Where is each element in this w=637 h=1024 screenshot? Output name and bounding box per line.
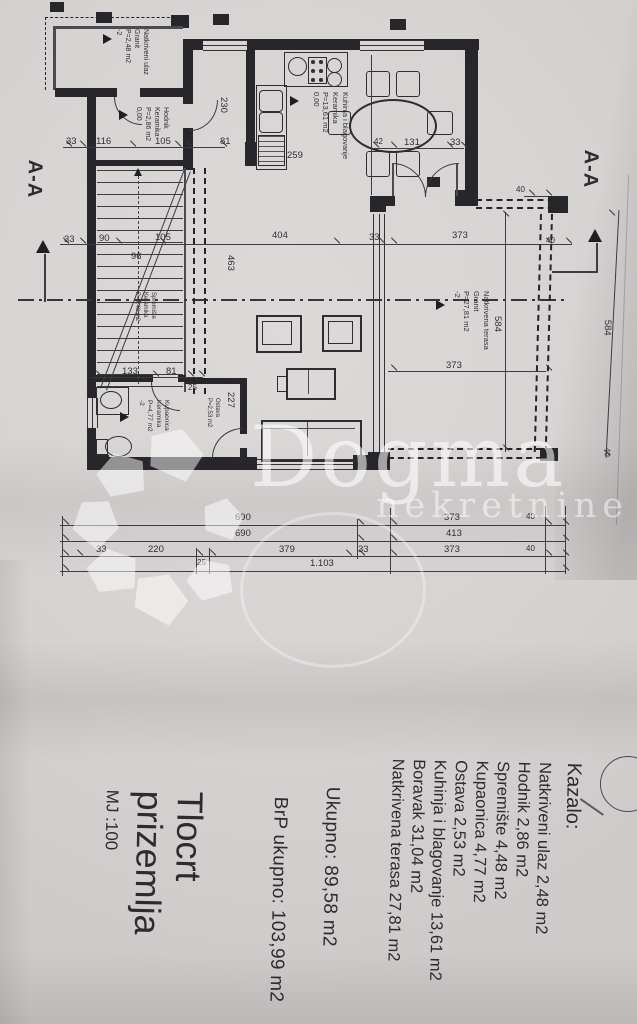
burner-large-2 xyxy=(327,72,342,87)
dimension-line xyxy=(357,519,358,559)
room-label-line: Keramika xyxy=(140,292,148,321)
column-living-terrace-bottom xyxy=(368,452,390,468)
room-label: HodnikKeramikaP=2,86 m20,00 xyxy=(134,107,170,141)
room-label-line: P=2,48 m2 xyxy=(123,29,132,75)
dimension-line xyxy=(44,254,46,302)
stair-direction-arrow xyxy=(134,168,142,176)
dimension-label: 96 xyxy=(131,251,142,262)
dimension-line xyxy=(62,516,63,576)
wall-hall-stairs xyxy=(87,160,185,166)
dimension-label: 373 xyxy=(444,512,460,523)
hob-plate-icon xyxy=(288,57,307,76)
room-label-line: P=4,77 m2 xyxy=(145,400,153,432)
level-marker-icon xyxy=(120,412,129,422)
dashed-line xyxy=(388,457,542,459)
stamp-circle xyxy=(600,756,637,812)
dimension-tick xyxy=(609,209,616,216)
room-label: OstavaP=2,53 m2 xyxy=(204,398,220,427)
toilet-bowl xyxy=(105,436,132,457)
door-leaf-right xyxy=(456,163,458,196)
legend-heading: Kazalo: xyxy=(557,762,585,984)
dimension-line xyxy=(505,212,506,452)
dimension-label: 220 xyxy=(148,544,164,555)
wall-storage-right xyxy=(240,378,247,434)
dimension-label: 116 xyxy=(96,136,111,147)
wall-bottom-a xyxy=(87,457,209,470)
dimension-line xyxy=(209,548,210,574)
room-label: KupaonicaKeramikaP=4,77 m2-2 xyxy=(136,400,170,432)
dimension-label: 230 xyxy=(218,97,229,113)
dashed-line xyxy=(45,17,46,90)
wall-bottom-b xyxy=(209,457,257,470)
floor-plan-photo: 3390105404333734096463230259227584584404… xyxy=(0,0,637,1024)
door-arc-terrace-right xyxy=(425,163,459,197)
armchair-1 xyxy=(256,315,302,353)
dimension-label: 40 xyxy=(516,185,525,194)
dashed-line xyxy=(45,17,185,18)
dimension-label: 463 xyxy=(225,255,236,271)
wall-right-upper xyxy=(465,39,478,199)
dimension-label: 133 xyxy=(122,366,138,377)
window-living-east xyxy=(373,214,385,452)
door-leaf-left xyxy=(392,163,394,196)
armchair-2 xyxy=(322,315,362,352)
door-arc-storage xyxy=(212,428,243,458)
stove-burners-icon xyxy=(311,60,315,64)
legend-kazalo: Kazalo: Natkriveni ulaz 2,48 m2Hodnik 2,… xyxy=(382,759,585,985)
hall-wall-top-a xyxy=(55,88,117,97)
room-label-line: Kuhinja i blagovanje xyxy=(340,92,350,159)
door-arc-corridor xyxy=(190,100,218,131)
room-label-line: Keramika xyxy=(331,92,341,159)
section-label-right: A-A xyxy=(578,149,602,188)
legend-total: Ukupno: 89,58 m2 xyxy=(317,787,343,948)
sofa xyxy=(261,420,362,462)
armchair-2-seat xyxy=(328,321,353,344)
section-axis-line xyxy=(18,299,568,301)
level-marker-icon xyxy=(290,96,299,106)
room-label-line: P=13,61 m2 xyxy=(321,92,331,159)
wall-stairs-right xyxy=(184,168,186,392)
section-arrow-left xyxy=(36,240,50,253)
legend-gross-total: BrP ukupno: 103,99 m2 xyxy=(264,797,291,1003)
dimension-label: 90 xyxy=(99,233,110,244)
dimension-line xyxy=(93,377,203,378)
level-marker-icon xyxy=(119,110,128,120)
wall-kitchen xyxy=(246,50,255,144)
dashed-line xyxy=(476,199,564,201)
section-label-left: A-A xyxy=(22,159,46,198)
dimension-line xyxy=(524,196,548,197)
appliance-icon xyxy=(258,135,285,166)
chair xyxy=(396,71,420,97)
column-terrace-se xyxy=(540,448,558,461)
dimension-label: 40 xyxy=(526,512,535,521)
paper-shading-band-lower xyxy=(0,640,637,760)
title-block: Tlocrt prizemlja MJ :100 xyxy=(99,790,210,936)
room-label: Natkriveni ulazGranitP=2,48 m2-2 xyxy=(114,29,150,75)
dimension-line xyxy=(545,506,546,574)
dimension-tick xyxy=(503,210,510,217)
dim-tag-3 xyxy=(390,19,406,30)
room-label-line: Kupaonica xyxy=(162,400,170,432)
armchair-1-seat xyxy=(262,321,292,345)
floor-plan-drawing: 3390105404333734096463230259227584584404… xyxy=(0,0,637,600)
dashed-line xyxy=(476,207,564,209)
dimension-label: 131 xyxy=(404,137,420,148)
bath-sink-bowl xyxy=(100,391,122,409)
dimension-label: 379 xyxy=(279,544,295,555)
dimension-label: 25 xyxy=(197,558,206,567)
dimension-label: 81 xyxy=(166,366,177,377)
burner-large-1 xyxy=(327,58,342,73)
room-label-line: Keramika xyxy=(153,400,161,432)
dimension-label: 373 xyxy=(452,230,468,241)
dimension-line xyxy=(63,147,225,148)
chair xyxy=(366,151,390,177)
dimension-label: 404 xyxy=(272,230,288,241)
coffee-table xyxy=(286,368,336,400)
dimension-line xyxy=(196,548,197,574)
level-marker-icon xyxy=(436,300,445,310)
dimension-label: 584 xyxy=(492,316,503,332)
room-label: Kuhinja i blagovanjeKeramikaP=13,61 m20,… xyxy=(311,92,350,159)
drawing-title-line2: prizemlja xyxy=(127,790,170,935)
room-label-line: P=2,86 m2 xyxy=(143,107,152,141)
dashed-line xyxy=(204,168,206,394)
room-label-line: -2 xyxy=(114,29,123,75)
dimension-line xyxy=(60,571,565,572)
dimension-label: 690 xyxy=(235,512,251,523)
dimension-label: 373 xyxy=(444,544,460,555)
dimension-line xyxy=(565,506,566,574)
room-label: SpremišteKeramikaP=4,48 m2 xyxy=(133,292,156,321)
level-marker-icon xyxy=(103,34,112,44)
dimension-label: 40 xyxy=(526,544,535,553)
dimension-line xyxy=(60,244,572,245)
dimension-line xyxy=(388,371,546,372)
chair xyxy=(366,71,390,97)
sink-basin-2 xyxy=(259,112,283,133)
room-label-line: 0,00 xyxy=(311,92,321,159)
dimension-line xyxy=(60,541,565,542)
stair-walk-line xyxy=(138,176,139,384)
sofa-back-line xyxy=(263,428,355,429)
dashed-line xyxy=(534,214,542,452)
room-label-line: Keramika xyxy=(152,107,161,141)
wall-left-outer xyxy=(87,88,96,398)
dim-tag-4 xyxy=(50,2,64,12)
entrance-wall-left xyxy=(53,26,56,90)
window-top-2 xyxy=(360,40,424,51)
dim-tag-2 xyxy=(213,14,229,25)
toilet-tank xyxy=(96,439,108,455)
coffee-table-side xyxy=(277,376,288,392)
dimension-label: 259 xyxy=(287,150,303,161)
drawing-scale: MJ :100 xyxy=(99,790,122,934)
room-label-line: Granit xyxy=(132,29,141,75)
dimension-label: 227 xyxy=(225,392,236,408)
dimension-line xyxy=(60,525,565,526)
coffee-table-divider xyxy=(308,370,309,394)
window-top-1 xyxy=(203,40,247,51)
room-label-line: Natkriveni ulaz xyxy=(141,29,150,75)
dimension-line xyxy=(596,243,598,273)
paper-shadow-left-edge xyxy=(0,560,30,1024)
dimension-label: 1.103 xyxy=(310,558,334,569)
dashed-line xyxy=(388,448,542,450)
legend-items: Natkriveni ulaz 2,48 m2Hodnik 2,86 m2Spr… xyxy=(382,759,555,984)
room-label-line: -2 xyxy=(136,400,144,432)
hall-wall-top-b xyxy=(140,88,185,97)
wall-dining-bottom-a xyxy=(383,196,395,206)
dimension-label: 33 xyxy=(96,544,107,555)
room-label-line: P=2,53 m2 xyxy=(204,398,212,427)
dimension-line xyxy=(60,556,565,557)
dimension-label: 690 xyxy=(235,528,251,539)
room-label-line: Ostava xyxy=(212,398,220,427)
dimension-label: 373 xyxy=(446,360,462,371)
section-arrow-right xyxy=(588,229,602,242)
dimension-line xyxy=(370,148,464,149)
sink-basin-1 xyxy=(259,90,283,112)
dimension-label: 413 xyxy=(446,528,462,539)
sofa-divider xyxy=(307,422,308,456)
chair xyxy=(427,111,453,135)
room-label-line: P=4,48 m2 xyxy=(133,292,141,321)
dimension-line xyxy=(371,55,372,195)
drawing-title-line1: Tlocrt xyxy=(167,791,210,936)
dashed-line xyxy=(545,214,553,452)
dimension-line xyxy=(552,271,598,273)
dashed-line xyxy=(193,168,195,394)
room-label-line: 0,00 xyxy=(134,107,143,141)
chair xyxy=(396,151,420,177)
room-label-line: Hodnik xyxy=(161,107,170,141)
bath-sink xyxy=(96,387,129,415)
room-label-line: Spremište xyxy=(148,292,156,321)
